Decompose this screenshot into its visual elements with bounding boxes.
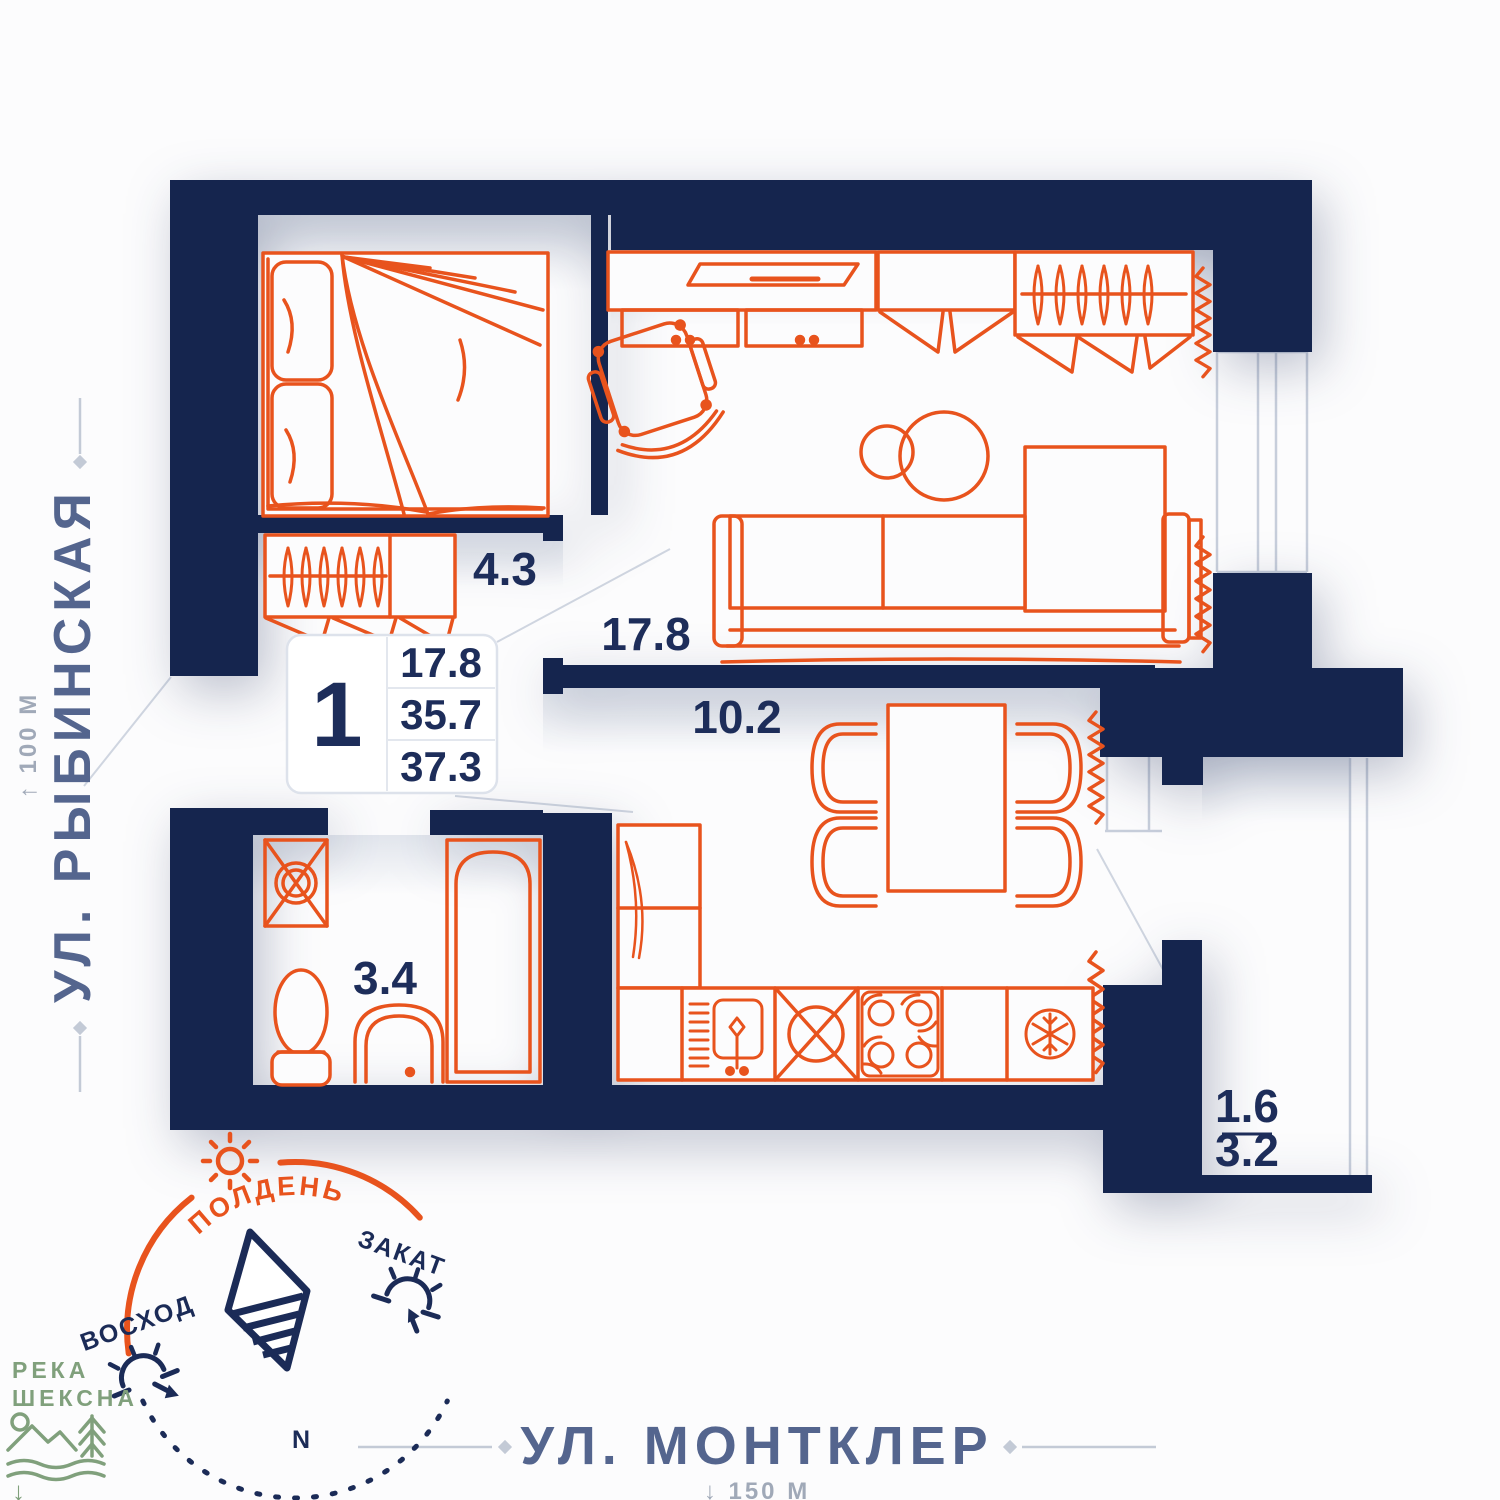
balcony-glazing bbox=[1350, 758, 1367, 1176]
living-wardrobe bbox=[1015, 252, 1193, 372]
bed bbox=[263, 253, 548, 516]
apartment-info-card: 1 17.8 35.7 37.3 bbox=[287, 635, 497, 793]
diamond-marker bbox=[498, 1440, 512, 1454]
floor-plan-canvas: 4.3 17.8 10.2 3.4 1.6 3.2 1 17.8 35.7 37… bbox=[0, 0, 1500, 1500]
card-area-total: 35.7 bbox=[400, 691, 482, 738]
diamond-marker bbox=[1003, 1440, 1017, 1454]
room-label-balcony: 1.6 3.2 bbox=[1215, 1080, 1279, 1176]
radiator-living-bottom bbox=[1196, 537, 1210, 652]
room-label-kitchen: 10.2 bbox=[692, 691, 782, 743]
bathroom-sink bbox=[355, 1005, 443, 1082]
room-label-living: 17.8 bbox=[601, 608, 691, 660]
sofa bbox=[714, 447, 1201, 662]
hall-wardrobe bbox=[265, 535, 455, 645]
street-bottom: УЛ. МОНТКЛЕР ↓ 150 М bbox=[358, 1416, 1156, 1500]
river-arrow: ↓ bbox=[12, 1476, 25, 1500]
window-kitchen-balcony bbox=[1105, 757, 1162, 831]
card-area-living: 17.8 bbox=[400, 639, 482, 686]
room-label-bathroom: 3.4 bbox=[353, 952, 417, 1004]
floor-plan-page: 4.3 17.8 10.2 3.4 1.6 3.2 1 17.8 35.7 37… bbox=[0, 0, 1500, 1500]
sunrise-label: ВОСХОД bbox=[77, 1290, 198, 1357]
card-area-full: 37.3 bbox=[400, 743, 482, 790]
noon-label: ПОЛДЕНЬ bbox=[183, 1171, 350, 1240]
kitchen-tall-cabinet bbox=[618, 825, 700, 988]
sun-icon bbox=[203, 1134, 257, 1188]
compass: N ПОЛДЕНЬ ВОСХОД ЗАКАТ bbox=[77, 1134, 451, 1498]
card-rooms-count: 1 bbox=[311, 664, 362, 766]
coffee-tables bbox=[861, 412, 988, 500]
river-name-line2: ШЕКСНА bbox=[12, 1385, 138, 1411]
street-left: УЛ. РЫБИНСКАЯ ↑ 100 М bbox=[15, 398, 102, 1092]
toilet bbox=[272, 970, 330, 1085]
window-living bbox=[1217, 352, 1307, 572]
room-label-hall: 4.3 bbox=[473, 543, 537, 595]
balcony-area-full: 3.2 bbox=[1215, 1124, 1279, 1176]
street-bottom-distance: ↓ 150 М bbox=[704, 1478, 810, 1500]
diamond-marker bbox=[73, 1021, 87, 1035]
cabinet bbox=[878, 252, 1015, 352]
desk bbox=[608, 252, 876, 346]
diamond-marker bbox=[73, 455, 87, 469]
river-name-line1: РЕКА bbox=[12, 1357, 89, 1383]
sunset-label: ЗАКАТ bbox=[354, 1225, 449, 1282]
river: РЕКА ШЕКСНА ↓ bbox=[8, 1357, 138, 1500]
dining-table bbox=[888, 705, 1005, 891]
river-landscape-icon bbox=[8, 1414, 104, 1480]
north-label: N bbox=[292, 1426, 312, 1454]
street-bottom-name: УЛ. МОНТКЛЕР bbox=[520, 1416, 993, 1476]
compass-needle bbox=[228, 1232, 307, 1368]
street-left-name: УЛ. РЫБИНСКАЯ bbox=[44, 487, 102, 1003]
street-left-distance: ↑ 100 М bbox=[15, 692, 42, 798]
